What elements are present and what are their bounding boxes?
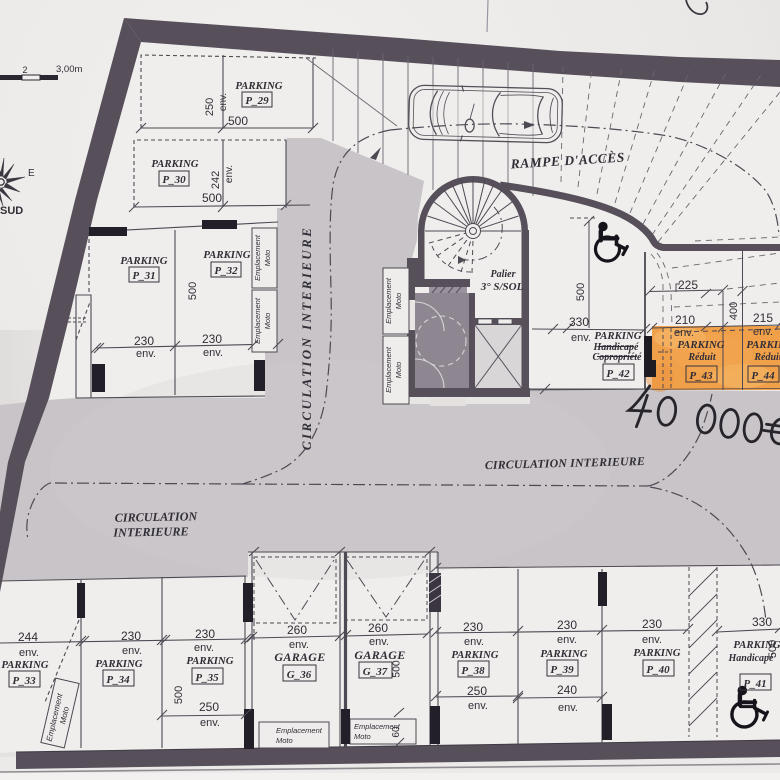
svg-text:400: 400 <box>728 302 740 320</box>
svg-text:Copropriété: Copropriété <box>593 352 642 363</box>
svg-text:230: 230 <box>463 620 483 634</box>
svg-text:CIRCULATION: CIRCULATION <box>115 509 199 524</box>
svg-text:CIRCULATION INTERIEURE: CIRCULATION INTERIEURE <box>299 226 314 450</box>
svg-text:Moto: Moto <box>263 313 272 330</box>
svg-text:P_41: P_41 <box>743 678 766 690</box>
svg-text:P_40: P_40 <box>646 664 670 676</box>
svg-text:230: 230 <box>134 334 154 348</box>
svg-text:230: 230 <box>195 627 215 641</box>
svg-text:Moto: Moto <box>263 250 272 267</box>
svg-text:215: 215 <box>753 311 773 325</box>
svg-text:env.: env. <box>19 647 39 659</box>
svg-text:INTERIEURE: INTERIEURE <box>112 524 188 539</box>
svg-text:P_35: P_35 <box>195 672 219 684</box>
svg-text:250: 250 <box>199 700 219 714</box>
svg-text:P_44: P_44 <box>751 370 775 382</box>
svg-text:P_39: P_39 <box>550 664 574 676</box>
svg-text:env.: env. <box>218 93 229 111</box>
svg-text:P_31: P_31 <box>132 270 155 282</box>
svg-text:G_36: G_36 <box>287 669 312 681</box>
svg-text:env.: env. <box>468 700 488 712</box>
svg-text:PARKING: PARKING <box>95 658 142 670</box>
svg-text:env.: env. <box>122 645 142 657</box>
svg-text:240: 240 <box>557 683 577 697</box>
svg-text:2: 2 <box>22 65 27 75</box>
svg-text:E: E <box>28 168 35 179</box>
svg-text:250: 250 <box>467 684 487 698</box>
svg-text:260: 260 <box>287 623 307 637</box>
svg-text:env.: env. <box>224 165 235 183</box>
svg-text:env.: env. <box>464 636 484 648</box>
svg-text:PARKING: PARKING <box>677 339 724 351</box>
svg-text:env.: env. <box>642 634 662 646</box>
svg-text:210: 210 <box>675 313 695 327</box>
svg-text:Réduit: Réduit <box>753 352 780 363</box>
svg-text:PARKING: PARKING <box>746 339 780 351</box>
svg-text:P_33: P_33 <box>12 675 36 687</box>
svg-text:Palier: Palier <box>491 269 516 280</box>
svg-text:330: 330 <box>752 615 772 629</box>
svg-text:Réduit: Réduit <box>687 352 716 363</box>
svg-text:Moto: Moto <box>394 362 403 379</box>
svg-text:Emplacement: Emplacement <box>384 277 393 324</box>
svg-text:Emplacement: Emplacement <box>253 234 262 281</box>
svg-text:225: 225 <box>678 278 698 292</box>
svg-text:P_32: P_32 <box>214 265 238 277</box>
svg-text:330: 330 <box>569 315 589 329</box>
svg-text:260: 260 <box>368 621 388 635</box>
svg-text:500: 500 <box>202 191 222 205</box>
svg-text:P_34: P_34 <box>106 674 130 686</box>
svg-text:500: 500 <box>767 640 779 658</box>
svg-text:500: 500 <box>575 283 587 301</box>
svg-text:244: 244 <box>18 630 38 644</box>
svg-text:env.: env. <box>753 326 773 338</box>
svg-text:P_42: P_42 <box>606 368 630 380</box>
svg-text:env.: env. <box>136 348 156 360</box>
svg-text:230: 230 <box>642 617 662 631</box>
svg-text:env.: env. <box>200 717 220 729</box>
svg-text:P_30: P_30 <box>162 174 186 186</box>
svg-text:PARKING: PARKING <box>203 249 250 261</box>
svg-text:PARKING: PARKING <box>1 659 48 671</box>
svg-text:env.: env. <box>674 327 694 339</box>
svg-text:3° S/SOL: 3° S/SOL <box>480 281 524 293</box>
svg-text:Moto: Moto <box>276 736 293 745</box>
svg-text:PARKING: PARKING <box>451 649 498 661</box>
svg-text:250: 250 <box>204 98 216 116</box>
svg-text:env.: env. <box>557 634 577 646</box>
svg-text:500: 500 <box>173 686 185 704</box>
svg-text:PARKING: PARKING <box>186 655 233 667</box>
svg-text:60: 60 <box>391 726 402 738</box>
svg-text:242: 242 <box>210 171 222 189</box>
svg-text:Moto: Moto <box>394 293 403 310</box>
svg-text:GARAGE: GARAGE <box>274 650 325 664</box>
svg-text:Emplacement: Emplacement <box>253 297 262 344</box>
svg-text:500: 500 <box>228 114 248 128</box>
svg-text:500: 500 <box>187 282 199 300</box>
svg-text:PARKING: PARKING <box>540 648 587 660</box>
svg-text:env.: env. <box>571 332 591 344</box>
svg-text:P_29: P_29 <box>245 95 269 107</box>
svg-text:GARAGE: GARAGE <box>354 648 405 662</box>
svg-text:230: 230 <box>557 618 577 632</box>
svg-text:Moto: Moto <box>354 732 371 741</box>
svg-text:Emplacement: Emplacement <box>276 726 323 735</box>
svg-text:PARKING: PARKING <box>633 647 680 659</box>
svg-text:PARKING: PARKING <box>594 330 641 342</box>
svg-text:env.: env. <box>369 636 389 648</box>
svg-text:SUD: SUD <box>0 205 23 217</box>
svg-text:env.: env. <box>194 642 214 654</box>
svg-text:G_37: G_37 <box>363 666 388 678</box>
svg-text:P_43: P_43 <box>689 370 713 382</box>
svg-text:230: 230 <box>121 629 141 643</box>
svg-text:env.: env. <box>558 702 578 714</box>
svg-text:PARKING: PARKING <box>120 255 167 267</box>
svg-text:3,00m: 3,00m <box>56 64 82 75</box>
svg-text:P_38: P_38 <box>461 665 485 677</box>
svg-text:500: 500 <box>391 660 403 678</box>
svg-text:env.: env. <box>203 347 223 359</box>
svg-text:PARKING: PARKING <box>151 158 198 170</box>
svg-text:PARKING: PARKING <box>235 80 282 92</box>
svg-text:230: 230 <box>202 332 222 346</box>
svg-text:Emplacement: Emplacement <box>384 346 393 393</box>
